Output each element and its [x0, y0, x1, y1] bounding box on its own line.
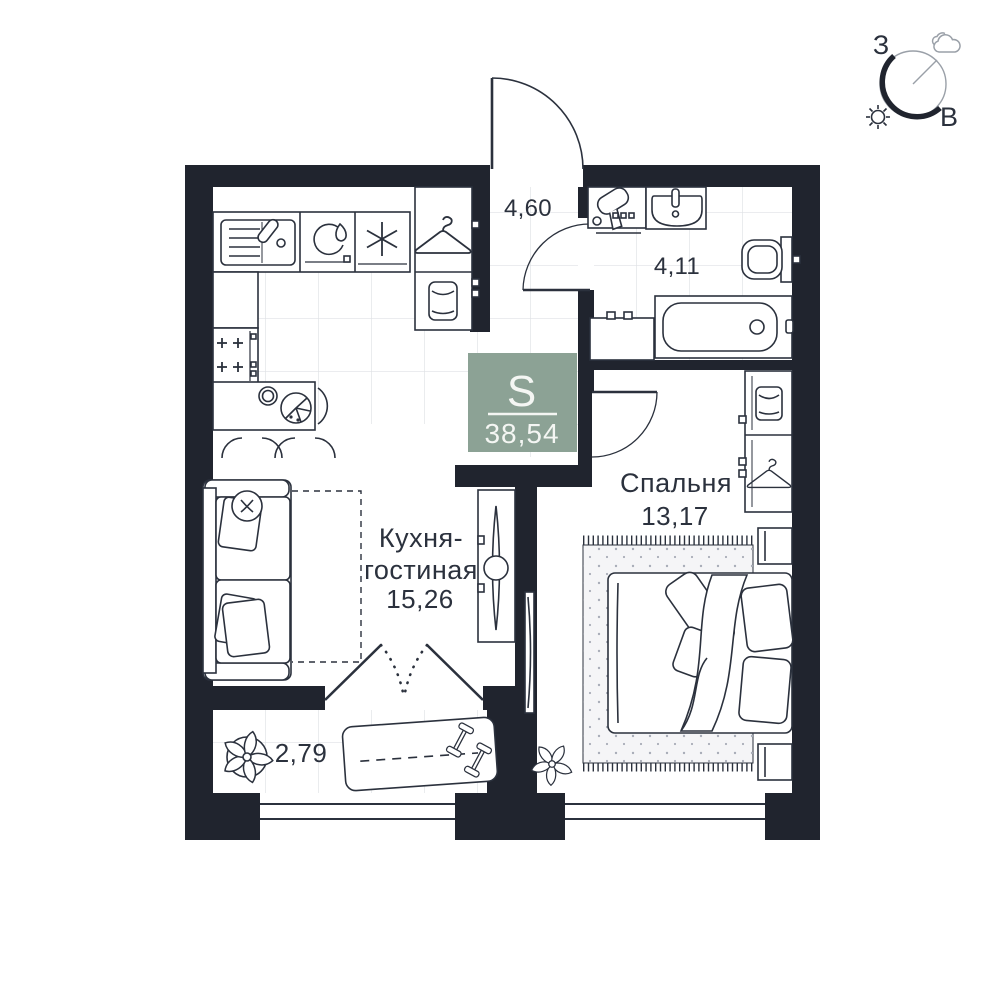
total-area-badge: S 38,54: [468, 353, 577, 452]
toilet-icon: [742, 237, 800, 282]
hallway-area-label: 4,60: [504, 195, 552, 222]
bed-icon: [608, 569, 794, 733]
bathroom-area-label: 4,11: [654, 253, 700, 280]
balcony-window: [260, 804, 455, 819]
bedroom-window: [565, 804, 765, 819]
compass-icon: З В: [866, 30, 960, 132]
compass-east-label: В: [940, 102, 958, 132]
pie-icon: [281, 393, 311, 423]
badge-area-value: 38,54: [484, 418, 559, 449]
bedroom-area-label: 13,17: [641, 501, 709, 531]
washbasin-icon: [646, 187, 706, 229]
side-table-icon: [232, 491, 262, 521]
kitchen-living-name-line2: гостиная: [364, 555, 478, 585]
floor-plan-canvas: S 38,54 4,60 4,11 Спальня 13,17 Кухня- г…: [0, 0, 1000, 1000]
entrance-door-swing-icon: [492, 78, 583, 169]
entry-closet: [415, 187, 479, 330]
floor-plan-drawing: S 38,54 4,60 4,11 Спальня 13,17 Кухня- г…: [0, 0, 1000, 1000]
hob-burners-icon: [213, 328, 258, 384]
cloud-icon: [933, 33, 960, 52]
bedroom-door-swing-icon: [592, 392, 657, 457]
badge-area-symbol: S: [507, 367, 537, 416]
compass-west-label: З: [873, 30, 889, 60]
kitchen-living-name-line1: Кухня-: [379, 523, 463, 553]
bedroom-tv-icon: [525, 592, 534, 713]
balcony-area-label: 2,79: [275, 738, 328, 768]
tv-console-icon: [478, 490, 515, 642]
balcony-french-doors-icon: [325, 645, 483, 700]
bedroom-wardrobe: [739, 371, 792, 512]
nightstand-icon: [758, 528, 792, 564]
bathtub-icon: [655, 296, 793, 358]
sun-icon: [866, 105, 890, 129]
bathroom-washer: [590, 312, 654, 360]
washing-machine-icon: [429, 282, 457, 320]
folded-clothes-icon: [756, 387, 782, 420]
kitchen-sink-icon: [221, 218, 295, 265]
kitchen-living-area-label: 15,26: [386, 584, 454, 614]
hair-dryer-counter: [588, 185, 646, 233]
exercise-mat-icon: [342, 717, 498, 791]
nightstand-icon: [758, 744, 792, 780]
sofa-bed-dashed-zone: [292, 491, 361, 662]
bedroom-name-label: Спальня: [620, 468, 732, 498]
